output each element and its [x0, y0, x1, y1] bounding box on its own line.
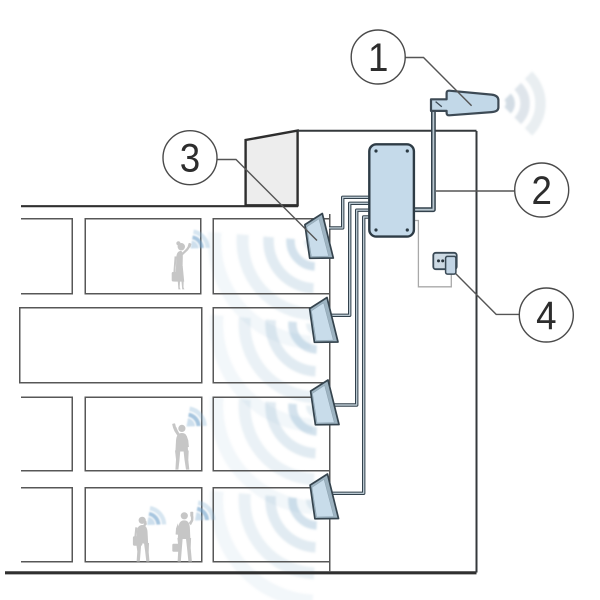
svg-text:2: 2: [531, 169, 551, 214]
svg-text:1: 1: [368, 36, 388, 81]
svg-text:4: 4: [536, 294, 556, 339]
svg-text:3: 3: [180, 136, 200, 181]
